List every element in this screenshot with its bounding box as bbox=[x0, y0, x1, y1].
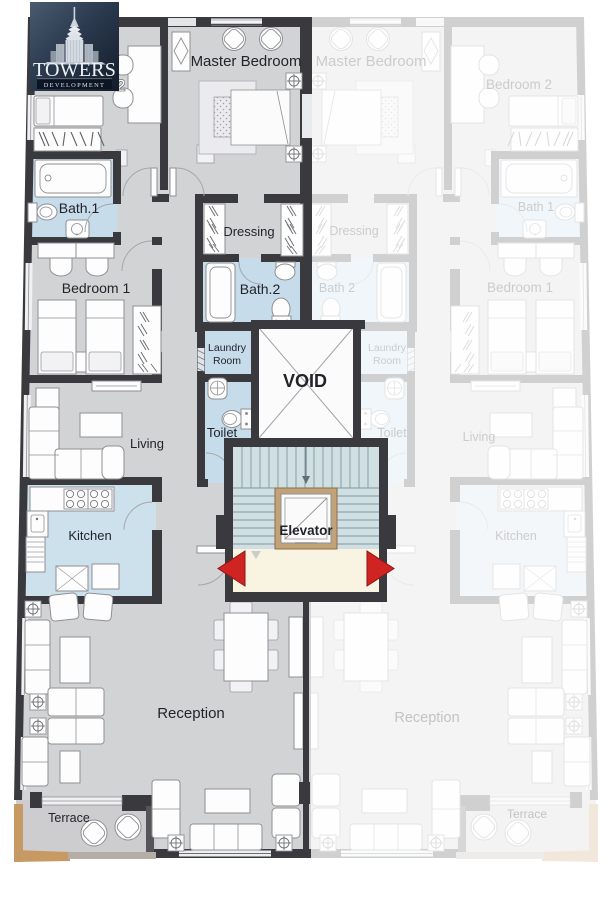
svg-text:Kitchen: Kitchen bbox=[495, 529, 537, 543]
svg-text:Bath.2: Bath.2 bbox=[240, 281, 281, 297]
svg-text:Elevator: Elevator bbox=[279, 523, 333, 538]
svg-text:Dressing: Dressing bbox=[329, 224, 378, 238]
svg-text:Terrace: Terrace bbox=[48, 811, 90, 825]
svg-text:Kitchen: Kitchen bbox=[68, 528, 111, 543]
svg-text:Bedroom 2: Bedroom 2 bbox=[486, 77, 552, 92]
svg-text:Toilet: Toilet bbox=[377, 426, 407, 440]
svg-text:Bath 1: Bath 1 bbox=[518, 200, 554, 214]
svg-text:TOWERS: TOWERS bbox=[33, 59, 116, 81]
svg-text:Laundry: Laundry bbox=[368, 342, 407, 354]
svg-text:Reception: Reception bbox=[394, 710, 459, 726]
svg-text:Terrace: Terrace bbox=[507, 807, 547, 821]
svg-text:Living: Living bbox=[130, 436, 164, 451]
svg-text:Bedroom 1: Bedroom 1 bbox=[62, 280, 131, 296]
svg-text:Master Bedroom: Master Bedroom bbox=[191, 53, 302, 70]
svg-text:Master Bedroom: Master Bedroom bbox=[316, 53, 427, 70]
svg-text:Living: Living bbox=[463, 430, 496, 444]
svg-text:Toilet: Toilet bbox=[207, 425, 238, 440]
svg-text:Dressing: Dressing bbox=[223, 224, 274, 239]
svg-text:Laundry: Laundry bbox=[208, 342, 247, 354]
svg-text:Bath.1: Bath.1 bbox=[59, 200, 100, 216]
svg-text:DEVELOPMENT: DEVELOPMENT bbox=[44, 82, 106, 89]
svg-text:Bedroom 1: Bedroom 1 bbox=[487, 280, 553, 295]
svg-text:VOID: VOID bbox=[283, 371, 327, 391]
svg-text:Room: Room bbox=[213, 355, 241, 367]
svg-text:Reception: Reception bbox=[157, 705, 225, 722]
svg-text:Bath 2: Bath 2 bbox=[319, 281, 355, 295]
svg-text:Room: Room bbox=[373, 355, 401, 367]
